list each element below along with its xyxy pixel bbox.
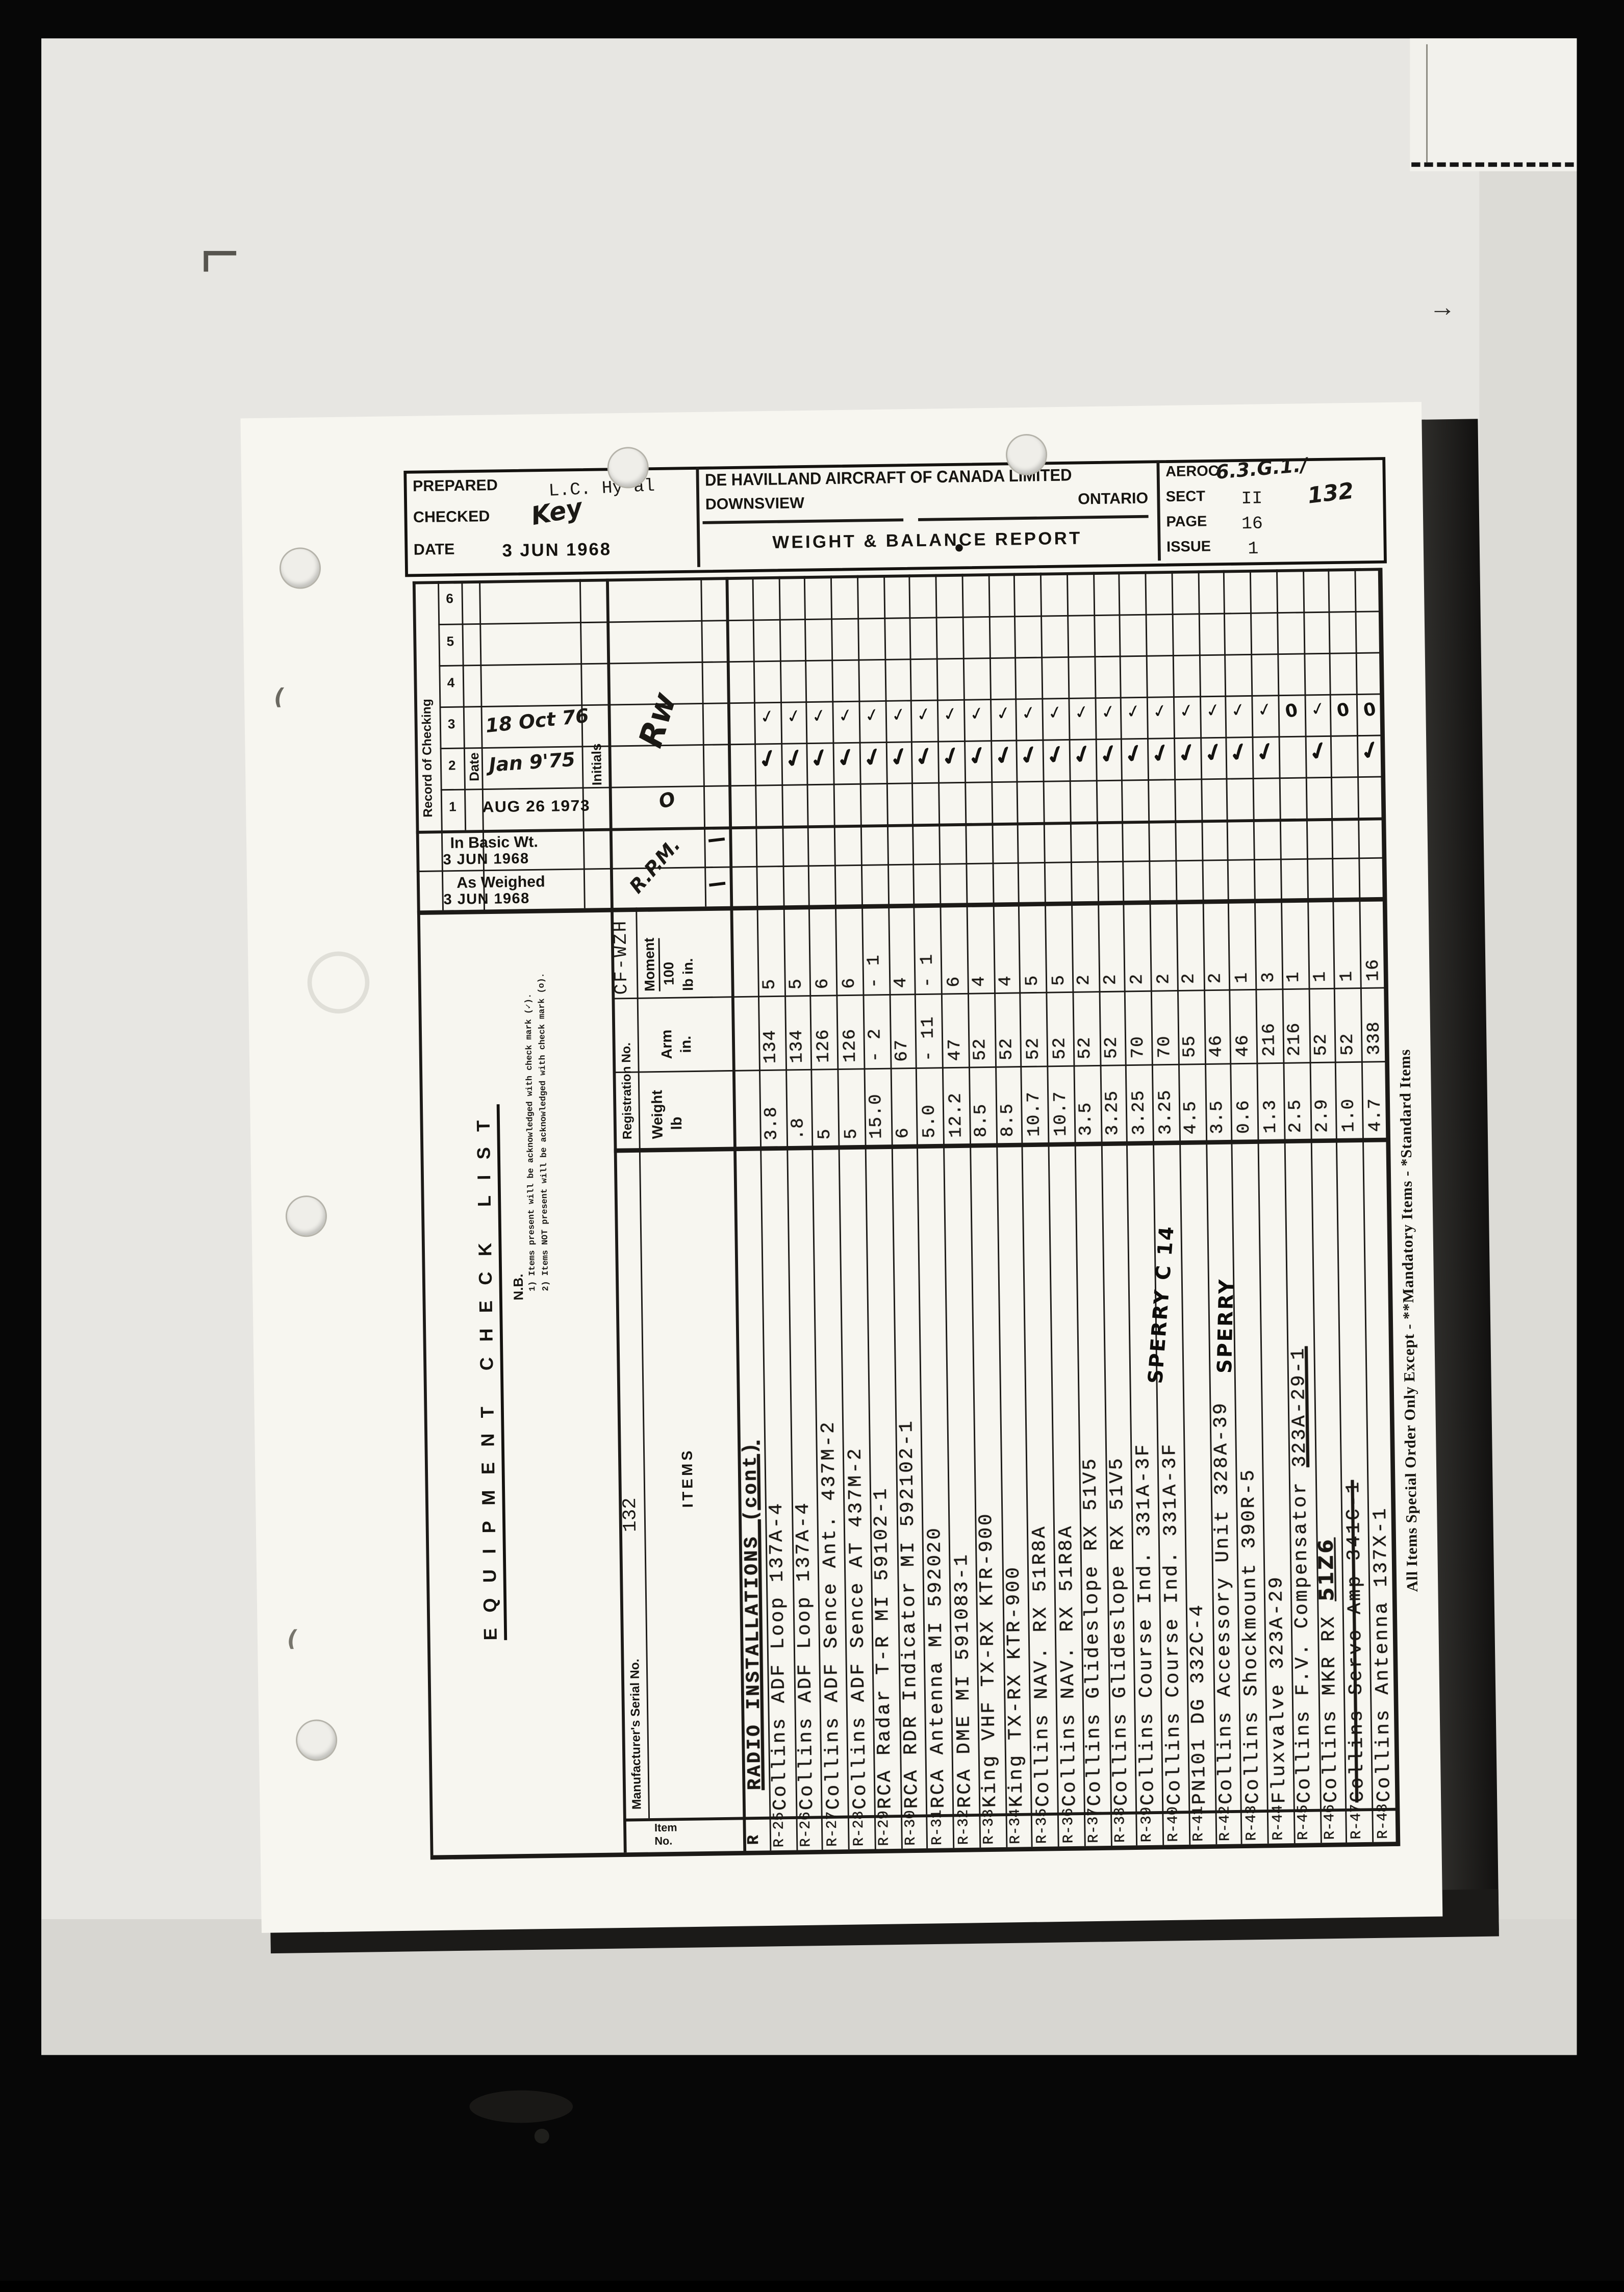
item-name: PN101 DG 332C-4: [1188, 1603, 1210, 1805]
item-moment: 6: [840, 977, 857, 989]
item-weight: 5: [816, 1128, 833, 1140]
item-weight: 1.0: [1339, 1098, 1358, 1132]
check-mark: ✓: [1250, 697, 1280, 723]
item-number: R-27: [827, 1811, 842, 1847]
item-moment: - 1: [866, 954, 884, 988]
check-mark-bold: ✓: [855, 740, 890, 775]
item-name: Collins Glideslope RX 51V5: [1107, 1456, 1131, 1805]
check-mark: ✓: [1198, 697, 1228, 723]
item-name: RCA DME MI 591083-1: [951, 1552, 974, 1808]
check-mark: ✓: [856, 702, 887, 728]
item-name: Collins ADF Loop 137A-4: [793, 1501, 817, 1810]
check-mark-bold: ✓: [1249, 734, 1283, 770]
item-arm: 70: [1155, 1035, 1173, 1058]
check-mark: ✓: [909, 701, 940, 727]
item-number: R-38: [1115, 1807, 1130, 1843]
item-moment: 5: [1049, 974, 1067, 986]
zero-mark: 0: [1276, 698, 1306, 724]
check-mark-bold: ✓: [1301, 733, 1335, 769]
item-weight: 5: [842, 1128, 859, 1139]
item-moment: 4: [971, 975, 988, 987]
item-name: Collins ADF Loop 137A-4: [767, 1501, 790, 1811]
check-mark: ✓: [1145, 698, 1176, 724]
item-arm: 216: [1286, 1022, 1305, 1056]
item-moment: 2: [1076, 974, 1094, 986]
item-name: Collins Glideslope RX 51V5: [1081, 1457, 1105, 1806]
item-number: R-42: [1220, 1805, 1235, 1841]
check-mark: ✓: [1302, 696, 1333, 722]
check-mark-bold: ✓: [1039, 737, 1073, 772]
check-mark-bold: ✓: [750, 741, 784, 776]
check-mark: ✓: [1119, 699, 1149, 725]
item-weight: 10.7: [1051, 1091, 1070, 1137]
item-weight: 3.8: [763, 1106, 781, 1140]
check-mark: ✓: [804, 703, 835, 729]
item-weight: 3.5: [1208, 1100, 1227, 1134]
item-name: Collins Accessory Unit 328A-39: [1211, 1401, 1236, 1804]
item-number: R-28: [853, 1811, 868, 1846]
item-moment: 1: [1338, 970, 1356, 982]
check-mark: ✓: [1040, 700, 1071, 726]
item-number: R-47: [1351, 1804, 1366, 1840]
item-number: R-44: [1272, 1805, 1287, 1841]
check-mark-bold: ✓: [829, 740, 864, 775]
item-arm: 52: [972, 1038, 989, 1061]
item-weight: 12.2: [946, 1092, 965, 1138]
check-mark: ✓: [778, 703, 808, 729]
item-moment: 1: [1285, 971, 1303, 983]
check-mark: ✓: [830, 703, 861, 729]
item-name: Collins Servo Amp 341C-1: [1343, 1480, 1367, 1803]
item-name: RCA RDR Indicator MI 592102-1: [897, 1419, 921, 1809]
check-mark: ✓: [1093, 699, 1123, 725]
item-arm: 52: [1024, 1037, 1042, 1060]
items-grid: Collins ADF Loop 137A-43.81345R-25✓✓Coll…: [240, 402, 1442, 1933]
item-moment: 6: [945, 976, 962, 987]
item-moment: 2: [1128, 973, 1146, 985]
item-name: Collins NAV. RX 51R8A: [1029, 1524, 1052, 1807]
item-number: R-45: [1299, 1804, 1314, 1840]
check-mark: ✓: [1067, 699, 1097, 725]
item-number: R-32: [958, 1809, 973, 1845]
item-number: R-25: [774, 1812, 790, 1848]
item-name: King VHF TX-RX KTR-900: [977, 1512, 1000, 1807]
item-moment: 5: [761, 978, 779, 990]
check-mark: ✓: [961, 701, 992, 727]
item-moment: 4: [892, 977, 910, 988]
item-moment: 2: [1207, 972, 1225, 984]
item-number: R-43: [1246, 1805, 1261, 1841]
item-arm: 46: [1234, 1034, 1252, 1057]
check-mark-bold: ✓: [1065, 737, 1099, 772]
check-mark: ✓: [1014, 700, 1045, 726]
item-arm: 52: [1312, 1033, 1330, 1056]
item-moment: 1: [1233, 972, 1251, 983]
item-name: Collins ADF Sence AT 437M-2: [845, 1446, 869, 1810]
zero-mark: 0: [1355, 697, 1385, 723]
document-wrap: ( ( PREPARED L.C. Hy'al CHECKED Key DATE…: [0, 0, 1624, 2292]
item-weight: 4.5: [1182, 1100, 1201, 1134]
item-arm: 52: [1077, 1036, 1095, 1059]
item-name: Collins Course Ind. 331A-3F: [1133, 1442, 1158, 1805]
check-mark-bold: ✓: [1354, 733, 1388, 768]
item-arm: 134: [788, 1029, 806, 1063]
item-weight: 3.5: [1077, 1102, 1096, 1136]
item-arm: - 11: [919, 1016, 937, 1062]
item-number: R-33: [984, 1809, 999, 1845]
item-arm: 55: [1181, 1035, 1199, 1058]
check-mark: ✓: [752, 704, 782, 730]
item-number: R-34: [1010, 1809, 1025, 1844]
item-weight: 3.25: [1156, 1089, 1174, 1135]
zero-mark: 0: [1329, 698, 1359, 723]
item-weight: 15.0: [868, 1093, 886, 1139]
check-mark: ✓: [1224, 697, 1254, 723]
item-moment: 6: [814, 978, 831, 989]
item-number: R-31: [931, 1810, 947, 1845]
item-moment: 2: [1154, 973, 1172, 984]
item-moment: 16: [1364, 958, 1382, 981]
item-weight: 0.6: [1235, 1100, 1253, 1134]
item-number: R-30: [905, 1810, 921, 1846]
item-number: R-36: [1062, 1808, 1078, 1844]
item-moment: 2: [1180, 973, 1198, 984]
item-arm: - 2: [867, 1028, 885, 1062]
check-mark: ✓: [935, 701, 966, 727]
item-arm: 47: [946, 1038, 963, 1061]
item-arm: 52: [1103, 1036, 1121, 1059]
item-arm: 126: [841, 1028, 859, 1062]
item-name: Collins Course Ind. 331A-3F: [1159, 1442, 1184, 1805]
item-name: King TX-RX KTR-900: [1004, 1565, 1026, 1807]
item-number: R-40: [1168, 1806, 1183, 1842]
item-weight: 5.0: [920, 1104, 938, 1138]
item-weight: 6: [894, 1127, 912, 1139]
item-arm: 67: [893, 1039, 911, 1062]
item-arm: 52: [998, 1037, 1016, 1060]
item-arm: 70: [1129, 1035, 1147, 1058]
item-arm: 134: [762, 1029, 780, 1063]
item-name: RCA Antenna MI 592020: [925, 1526, 948, 1809]
item-arm: 126: [814, 1029, 832, 1063]
document-page: ( ( PREPARED L.C. Hy'al CHECKED Key DATE…: [240, 402, 1442, 1933]
item-weight: 3.25: [1130, 1089, 1148, 1135]
item-name: Fluxvalve 323A-29: [1266, 1575, 1288, 1803]
item-number: R-26: [800, 1812, 816, 1847]
item-name: RCA Radar T-R MI 59102-1: [872, 1487, 895, 1810]
item-moment: 3: [1259, 971, 1277, 983]
item-number: R-48: [1377, 1803, 1392, 1839]
item-number: R-29: [879, 1811, 894, 1846]
item-arm: 46: [1208, 1034, 1226, 1057]
item-name: Collins F.V. Compensator 323A-29-1: [1289, 1346, 1314, 1803]
item-weight: 3.25: [1103, 1090, 1122, 1136]
check-mark-bold: ✓: [960, 738, 995, 774]
item-number: R-37: [1089, 1807, 1104, 1843]
item-weight: 1.3: [1261, 1099, 1279, 1133]
item-arm: 52: [1050, 1037, 1068, 1060]
item-weight: 4.7: [1366, 1098, 1384, 1132]
item-weight: 2.5: [1287, 1099, 1306, 1133]
item-number: R-41: [1194, 1806, 1209, 1842]
item-weight: 8.5: [999, 1103, 1017, 1137]
check-mark-bold: ✓: [934, 738, 968, 774]
item-number: R-46: [1325, 1804, 1340, 1840]
item-moment: 5: [787, 978, 805, 989]
check-mark-bold: ✓: [1170, 735, 1204, 771]
item-arm: 338: [1365, 1021, 1383, 1055]
item-weight: 2.9: [1313, 1099, 1332, 1133]
item-moment: 5: [1023, 975, 1041, 986]
item-weight: .8: [789, 1117, 807, 1140]
check-mark: ✓: [987, 700, 1018, 726]
item-name: Collins NAV. RX 51R8A: [1056, 1524, 1079, 1807]
item-moment: - 1: [918, 953, 936, 987]
item-name: Collins Shockmount 390R-5: [1238, 1468, 1262, 1804]
item-moment: 2: [1102, 974, 1120, 985]
item-name: Collins ADF Sence Ant. 437M-2: [818, 1420, 843, 1810]
check-mark: ✓: [883, 702, 914, 728]
item-weight: 8.5: [973, 1103, 991, 1137]
item-name: Collins Antenna 137X-1: [1370, 1507, 1393, 1802]
item-weight: 10.7: [1025, 1091, 1043, 1137]
item-arm: 52: [1339, 1033, 1357, 1056]
item-name: Collins MKR RX 51Z6: [1318, 1537, 1341, 1803]
item-number: R-39: [1141, 1806, 1156, 1842]
item-arm: 216: [1260, 1023, 1278, 1057]
check-mark: ✓: [1171, 698, 1202, 724]
scanned-film-frame: → ( ( PREPARED L.C. Hy'al CHECKED Key D: [0, 0, 1624, 2281]
item-moment: 4: [997, 975, 1015, 987]
item-moment: 1: [1312, 971, 1330, 982]
item-number: R-35: [1036, 1808, 1052, 1844]
